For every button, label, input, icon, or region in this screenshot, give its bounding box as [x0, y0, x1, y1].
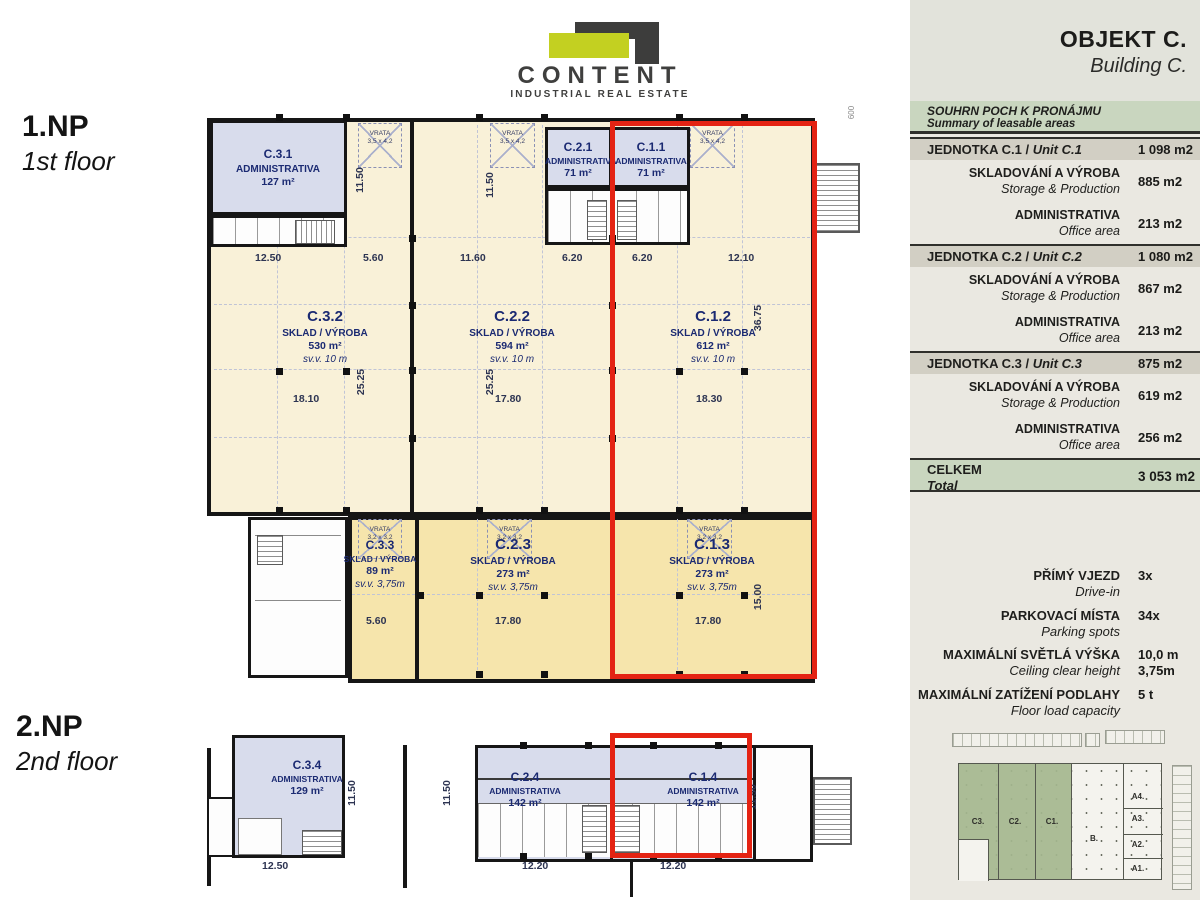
dimension-label: 12.50: [262, 860, 288, 872]
gate-label: VRATA: [370, 130, 391, 137]
site-divider: [1123, 808, 1163, 809]
site-label-a3: A3.: [1125, 814, 1151, 823]
floor2-code: 2.NP: [16, 710, 83, 744]
site-divider: [998, 764, 999, 879]
unit-c1-total: 1 098 m2: [1138, 142, 1193, 157]
column-marker: [276, 368, 283, 375]
dimension-label: 17.80: [495, 615, 521, 627]
unit-c14-highlight: [610, 733, 752, 858]
site-divider: [1035, 764, 1036, 879]
section-wall: [403, 745, 407, 888]
parking-strip: [1105, 730, 1165, 744]
external-stairwell: [813, 777, 852, 845]
room-label-c31: C.3.1 ADMINISTRATIVA 127 m²: [218, 147, 338, 189]
parking-strip: [1172, 765, 1192, 890]
spec-value: 3x: [1138, 568, 1152, 583]
building-specs: PŘÍMÝ VJEZD Drive-in 3x PARKOVACÍ MÍSTA …: [910, 568, 1200, 726]
row-value: 885 m2: [1138, 174, 1182, 189]
summary-title-cz: SOUHRN POCH K PRONÁJMU: [927, 104, 1200, 118]
table-row: SKLADOVÁNÍ A VÝROBA Storage & Production…: [910, 374, 1200, 416]
stairs-icon: [302, 830, 342, 855]
unit-c3-label-en: Unit C.3: [1033, 356, 1082, 371]
site-divider: [1071, 764, 1072, 879]
gate-size: 3,5 x 4,2: [500, 138, 525, 145]
unit-c2-label-en: Unit C.2: [1033, 249, 1082, 264]
site-label-a4: A4.: [1125, 792, 1151, 801]
unit-c1-label-en: Unit C.1: [1033, 142, 1082, 157]
spec-drive-in: PŘÍMÝ VJEZD Drive-in 3x: [910, 568, 1200, 601]
row-value: 213 m2: [1138, 323, 1182, 338]
dimension-label: 11.50: [354, 167, 366, 193]
column-marker: [409, 435, 416, 442]
site-divider: [1123, 764, 1124, 879]
dimension-label: 11.60: [460, 252, 486, 264]
total-value: 3 053 m2: [1138, 469, 1195, 485]
room-label-c32: C.3.2 SKLAD / VÝROBA 530 m² sv.v. 10 m: [260, 307, 390, 366]
column-marker: [585, 853, 592, 860]
dimension-label: 12.20: [660, 860, 686, 872]
section-wall: [630, 862, 633, 897]
site-label-b: B.: [1084, 834, 1104, 843]
column-marker: [476, 671, 483, 678]
unit-c1-highlight: [610, 121, 817, 679]
dimension-label: 11.50: [484, 172, 496, 198]
room-label-c33: C.3.3 SKLAD / VÝROBA 89 m² sv.v. 3,75m: [340, 538, 420, 591]
unit-c2-header: JEDNOTKA C.2 / Unit C.2 1 080 m2: [910, 244, 1200, 267]
site-plan-thumbnail: C3. C2. C1. B. A4. A3. A2. A1.: [935, 725, 1200, 900]
floorplan-2np: C.3.4 ADMINISTRATIVA 129 m² C.2.4 ADMINI…: [200, 725, 900, 900]
site-label-a1: A1.: [1125, 864, 1151, 873]
room-label-c21: C.2.1 ADMINISTRATIVA 71 m²: [545, 140, 611, 180]
spec-parking: PARKOVACÍ MÍSTA Parking spots 34x: [910, 608, 1200, 641]
column-marker: [343, 114, 350, 121]
stair-lobby: [207, 797, 234, 857]
spec-clear-height: MAXIMÁLNÍ SVĚTLÁ VÝŠKA Ceiling clear hei…: [910, 647, 1200, 680]
row-value: 619 m2: [1138, 388, 1182, 403]
unit-c3-total: 875 m2: [1138, 356, 1182, 371]
dimension-label: 17.80: [495, 393, 521, 405]
table-row: ADMINISTRATIVA Office area 213 m2: [910, 202, 1200, 244]
stairs-icon: [295, 220, 335, 244]
gate-label: VRATA: [499, 526, 520, 533]
dimension-label: 18.10: [293, 393, 319, 405]
row-value: 256 m2: [1138, 430, 1182, 445]
logo-mark-dark-leg: [635, 22, 659, 64]
dimension-label: 5.60: [363, 252, 383, 264]
column-marker: [276, 507, 283, 514]
summary-band: SOUHRN POCH K PRONÁJMU Summary of leasab…: [910, 101, 1200, 134]
dimension-label: 5.60: [366, 615, 386, 627]
column-marker: [409, 367, 416, 374]
stairs-icon: [257, 535, 283, 565]
row-value: 867 m2: [1138, 281, 1182, 296]
floor1-name: 1st floor: [22, 146, 115, 177]
column-marker: [541, 114, 548, 121]
table-row: SKLADOVÁNÍ A VÝROBA Storage & Production…: [910, 267, 1200, 309]
table-row: SKLADOVÁNÍ A VÝROBA Storage & Production…: [910, 160, 1200, 202]
column-marker: [409, 235, 416, 242]
spec-value-2: 3,75m: [1138, 663, 1175, 678]
wc-core: [238, 818, 282, 855]
site-building-corner: [959, 839, 989, 881]
dimension-label: 25.25: [484, 369, 496, 395]
dimension-label: 12.50: [255, 252, 281, 264]
stairs-icon: [582, 805, 607, 853]
parking-strip: [952, 733, 1082, 747]
site-divider: [1123, 834, 1163, 835]
technical-block-partition: [255, 600, 341, 601]
row-value: 213 m2: [1138, 216, 1182, 231]
site-building-outline: C3. C2. C1. B. A4. A3. A2. A1.: [958, 763, 1162, 880]
dimension-label: 11.50: [346, 780, 358, 806]
column-marker: [409, 302, 416, 309]
gate-label: VRATA: [370, 526, 391, 533]
site-label-c3: C3.: [965, 817, 991, 826]
wall-c32-c22: [410, 118, 414, 516]
spec-value: 10,0 m: [1138, 647, 1178, 662]
unit-c3-header: JEDNOTKA C.3 / Unit C.3 875 m2: [910, 351, 1200, 374]
site-label-a2: A2.: [1125, 840, 1151, 849]
summary-title-en: Summary of leasable areas: [927, 118, 1200, 130]
gate-marker: VRATA 3,5 x 4,2: [490, 123, 535, 168]
info-sidebar: OBJEKT C. Building C. SOUHRN POCH K PRON…: [910, 0, 1200, 900]
unit-c3-label-cz: JEDNOTKA C.3 /: [927, 356, 1029, 371]
external-stairwell: [815, 163, 860, 233]
room-label-c22: C.2.2 SKLAD / VÝROBA 594 m² sv.v. 10 m: [447, 307, 577, 366]
column-marker: [476, 114, 483, 121]
unit-c1-label-cz: JEDNOTKA C.1 /: [927, 142, 1029, 157]
column-marker: [585, 742, 592, 749]
dimension-label: 25.25: [355, 369, 367, 395]
column-marker: [520, 853, 527, 860]
site-divider: [1123, 858, 1163, 859]
room-label-c23: C.2.3 SKLAD / VÝROBA 273 m² sv.v. 3,75m: [448, 535, 578, 594]
column-marker: [741, 114, 748, 121]
unit-c2-label-cz: JEDNOTKA C.2 /: [927, 249, 1029, 264]
dimension-label: 6.20: [562, 252, 582, 264]
stairs-icon: [587, 200, 607, 240]
column-marker: [676, 114, 683, 121]
column-marker: [541, 507, 548, 514]
unit-c2-total: 1 080 m2: [1138, 249, 1193, 264]
building-subtitle: Building C.: [910, 55, 1187, 78]
column-marker: [276, 114, 283, 121]
sidebar-header: OBJEKT C. Building C.: [910, 0, 1200, 101]
column-marker: [417, 592, 424, 599]
gate-size: 3,5 x 4,2: [368, 138, 393, 145]
floor1-code: 1.NP: [22, 110, 89, 144]
gate-marker: VRATA 3,5 x 4,2: [358, 123, 402, 168]
leasable-areas-table: JEDNOTKA C.1 / Unit C.1 1 098 m2 SKLADOV…: [910, 137, 1200, 492]
table-row: ADMINISTRATIVA Office area 256 m2: [910, 416, 1200, 458]
column-marker: [476, 507, 483, 514]
building-title: OBJEKT C.: [910, 26, 1187, 53]
dimension-label: 12.20: [522, 860, 548, 872]
gate-label: VRATA: [502, 130, 523, 137]
logo-wordmark: CONTENT: [505, 62, 695, 90]
column-marker: [343, 368, 350, 375]
floor2-name: 2nd floor: [16, 746, 117, 777]
total-row: CELKEM Total 3 053 m2: [910, 458, 1200, 492]
spec-value: 5 t: [1138, 687, 1153, 702]
logo-mark-yellow: [549, 33, 629, 58]
spec-floor-load: MAXIMÁLNÍ ZATÍŽENÍ PODLAHY Floor load ca…: [910, 687, 1200, 720]
unit-c1-header: JEDNOTKA C.1 / Unit C.1 1 098 m2: [910, 137, 1200, 160]
parking-strip: [1085, 733, 1100, 747]
dimension-label: 11.50: [441, 780, 453, 806]
room-label-c24: C.2.4 ADMINISTRATIVA 142 m²: [460, 770, 590, 810]
column-marker: [343, 507, 350, 514]
content-logo: CONTENT INDUSTRIAL REAL ESTATE: [505, 8, 695, 100]
brochure-page: CONTENT INDUSTRIAL REAL ESTATE 1.NP 1st …: [0, 0, 1200, 900]
floorplan-1np: VRATA 3,5 x 4,2 VRATA 3,5 x 4,2 VRATA 3,…: [200, 95, 915, 695]
column-marker: [541, 671, 548, 678]
column-marker: [520, 742, 527, 749]
table-row: ADMINISTRATIVA Office area 213 m2: [910, 309, 1200, 351]
spec-value: 34x: [1138, 608, 1160, 623]
site-label-c2: C2.: [1002, 817, 1028, 826]
site-label-c1: C1.: [1039, 817, 1065, 826]
dimension-label: 600: [847, 106, 856, 119]
